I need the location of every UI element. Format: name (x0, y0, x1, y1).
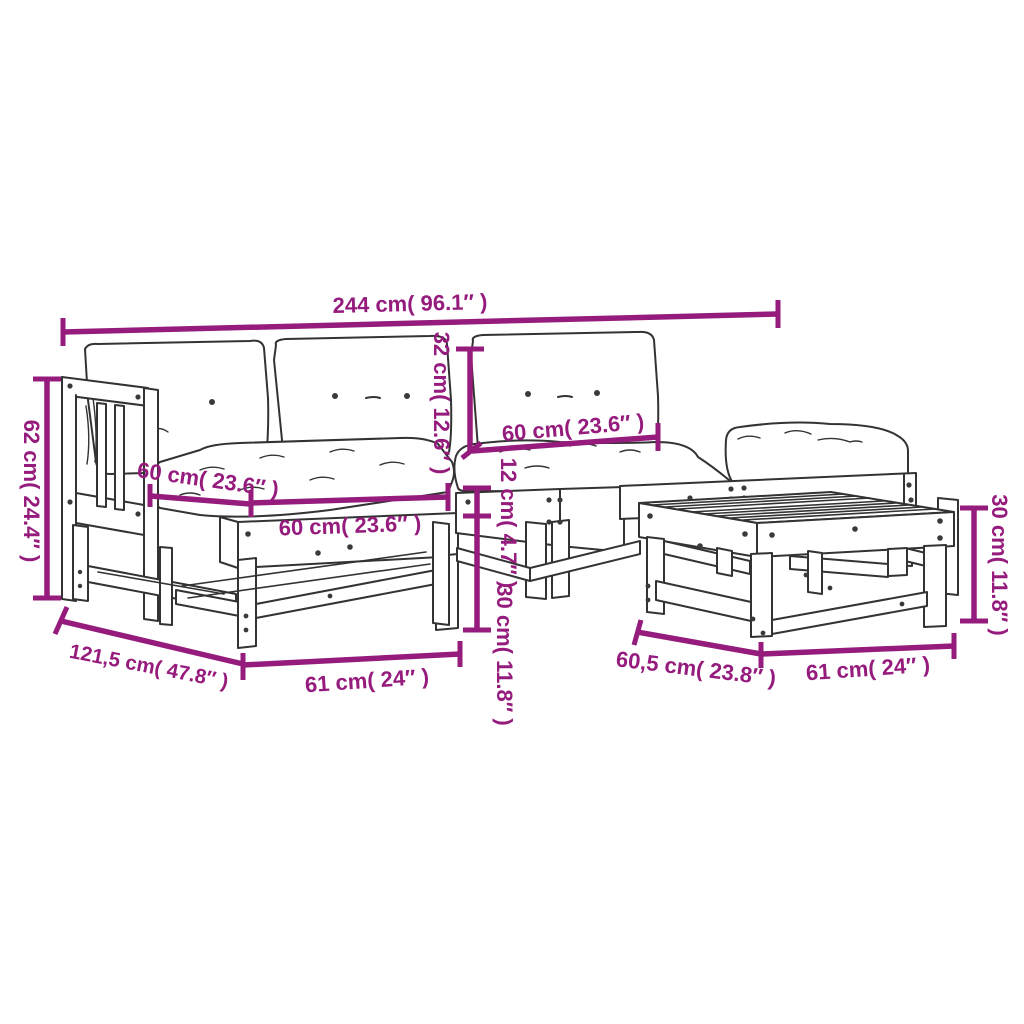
svg-text:60 cm( 23.6″ ): 60 cm( 23.6″ ) (278, 511, 421, 541)
svg-text:244 cm( 96.1″ ): 244 cm( 96.1″ ) (332, 289, 487, 318)
svg-text:30 cm( 11.8″ ): 30 cm( 11.8″ ) (492, 584, 517, 725)
svg-text:62 cm( 24.4″ ): 62 cm( 24.4″ ) (19, 420, 44, 563)
svg-text:30 cm( 11.8″ ): 30 cm( 11.8″ ) (987, 494, 1012, 635)
svg-text:32 cm( 12.6″ ): 32 cm( 12.6″ ) (429, 332, 454, 475)
svg-text:12 cm( 4.7″ ): 12 cm( 4.7″ ) (496, 458, 521, 588)
